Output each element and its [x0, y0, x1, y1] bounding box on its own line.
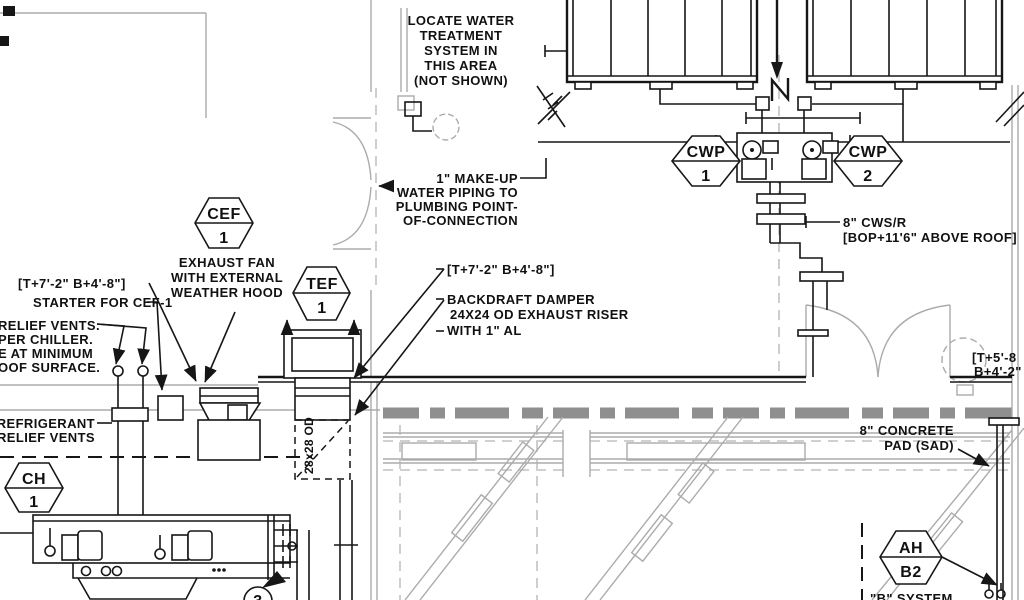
tag-number: 1: [701, 168, 710, 185]
tag-number: 1: [29, 494, 38, 511]
tag-cwp-1: CWP 1: [672, 136, 740, 186]
svg-text:8" CONCRETE: 8" CONCRETE: [860, 423, 954, 438]
view-cut-marker: [3, 6, 15, 16]
tag-label: CWP: [687, 144, 726, 161]
svg-text:RELIEF VENTS.: RELIEF VENTS.: [0, 318, 100, 333]
pipe-anchor: [538, 92, 570, 124]
tag-ah-b2: AH B2: [880, 531, 942, 584]
note-b-system: "B" SYSTEM: [870, 591, 953, 600]
svg-text:[T+5'-8: [T+5'-8: [972, 350, 1017, 365]
relief-vent-terminal: [113, 366, 123, 376]
note-coord-left: [T+7'-2" B+4'-8"]: [18, 276, 126, 291]
tag-label: TEF: [306, 276, 338, 293]
pipe-anchor: [996, 92, 1024, 122]
note-relief-vents: RELIEF VENTS. PER CHILLER. E AT MINIMUM …: [0, 318, 100, 375]
svg-text:WEATHER HOOD: WEATHER HOOD: [171, 285, 283, 300]
roof-plan-svg: 3 CEF 1 T: [0, 0, 1024, 600]
vent-header: [112, 408, 148, 421]
note-coord-right: [T+5'-8 B+4'-2": [972, 350, 1022, 379]
note-locate-water-treatment: LOCATE WATER TREATMENT SYSTEM IN THIS AR…: [408, 13, 515, 88]
note-starter: STARTER FOR CEF-1: [33, 295, 172, 310]
svg-text:B+4'-2": B+4'-2": [974, 364, 1022, 379]
flow-arrow: [771, 62, 783, 79]
tag-number: B2: [900, 564, 921, 581]
note-riser-size: 28x28 OD: [302, 417, 316, 474]
pipe-break-symbol: [772, 78, 788, 101]
tag-label: CEF: [207, 206, 241, 223]
tag-number: 2: [863, 168, 872, 185]
svg-text:WITH EXTERNAL: WITH EXTERNAL: [171, 270, 283, 285]
relief-vent-terminal: [138, 366, 148, 376]
pump-skid: [737, 133, 838, 182]
tag-number: 1: [219, 230, 228, 247]
tag-label: CWP: [849, 144, 888, 161]
svg-text:24X24 OD EXHAUST RISER: 24X24 OD EXHAUST RISER: [450, 307, 629, 322]
tag-number: 1: [317, 300, 326, 317]
svg-text:LOCATE WATER: LOCATE WATER: [408, 13, 515, 28]
svg-text:OF-CONNECTION: OF-CONNECTION: [403, 213, 518, 228]
tag-cef-1: CEF 1: [195, 198, 253, 248]
tag-cwp-2: CWP 2: [834, 136, 902, 186]
svg-text:EXHAUST FAN: EXHAUST FAN: [179, 255, 275, 270]
svg-text:8" CWS/R: 8" CWS/R: [843, 215, 907, 230]
tag-label: AH: [899, 540, 923, 557]
starter-box: [158, 396, 183, 420]
note-refrigerant-vents: ' REFRIGERANT RELIEF VENTS: [0, 416, 95, 445]
svg-text:PLUMBING POINT-: PLUMBING POINT-: [396, 199, 518, 214]
svg-text:THIS AREA: THIS AREA: [424, 58, 497, 73]
note-makeup-water: 1" MAKE-UP WATER PIPING TO PLUMBING POIN…: [396, 171, 518, 228]
svg-text:SYSTEM IN: SYSTEM IN: [424, 43, 498, 58]
svg-text:RELIEF VENTS: RELIEF VENTS: [0, 430, 95, 445]
cooling-tower-2: [807, 0, 1002, 89]
double-door-right: [806, 305, 950, 377]
drawing-sheet: 3 CEF 1 T: [0, 0, 1024, 600]
note-concrete-pad: 8" CONCRETE PAD (SAD): [860, 423, 954, 453]
view-cut-marker: [0, 36, 9, 46]
svg-text:WITH 1" AL: WITH 1" AL: [447, 323, 522, 338]
note-exhaust-fan: EXHAUST FAN WITH EXTERNAL WEATHER HOOD: [171, 255, 283, 300]
svg-text:1" MAKE-UP: 1" MAKE-UP: [436, 171, 518, 186]
svg-text:PER CHILLER.: PER CHILLER.: [0, 332, 93, 347]
cooling-tower-1: [567, 0, 757, 89]
chiller-ch1: 3: [0, 515, 309, 600]
svg-text:E AT MINIMUM: E AT MINIMUM: [0, 346, 93, 361]
annotations: LOCATE WATER TREATMENT SYSTEM IN THIS AR…: [0, 13, 1022, 600]
exhaust-fan-cef1: [198, 388, 260, 460]
svg-text:OOF SURFACE.: OOF SURFACE.: [0, 360, 100, 375]
svg-text:BACKDRAFT DAMPER: BACKDRAFT DAMPER: [447, 292, 595, 307]
svg-text:(NOT SHOWN): (NOT SHOWN): [414, 73, 508, 88]
note-cws: 8" CWS/R [BOP+11'6" ABOVE ROOF]: [843, 215, 1017, 245]
tag-label: CH: [22, 471, 46, 488]
svg-text:[BOP+11'6" ABOVE ROOF]: [BOP+11'6" ABOVE ROOF]: [843, 230, 1017, 245]
svg-text:' REFRIGERANT: ' REFRIGERANT: [0, 416, 95, 431]
svg-text:TREATMENT: TREATMENT: [420, 28, 503, 43]
svg-text:PAD (SAD): PAD (SAD): [884, 438, 954, 453]
tag-tef-1: TEF 1: [293, 267, 350, 320]
note-coord-center: [T+7'-2" B+4'-8"]: [447, 262, 555, 277]
tag-ch-1: CH 1: [5, 463, 63, 512]
exhaust-fan-tef1: [284, 320, 361, 378]
note-backdraft-damper: BACKDRAFT DAMPER 24X24 OD EXHAUST RISER …: [447, 292, 629, 338]
svg-text:WATER PIPING TO: WATER PIPING TO: [397, 185, 518, 200]
keynote-number: 3: [253, 593, 262, 600]
